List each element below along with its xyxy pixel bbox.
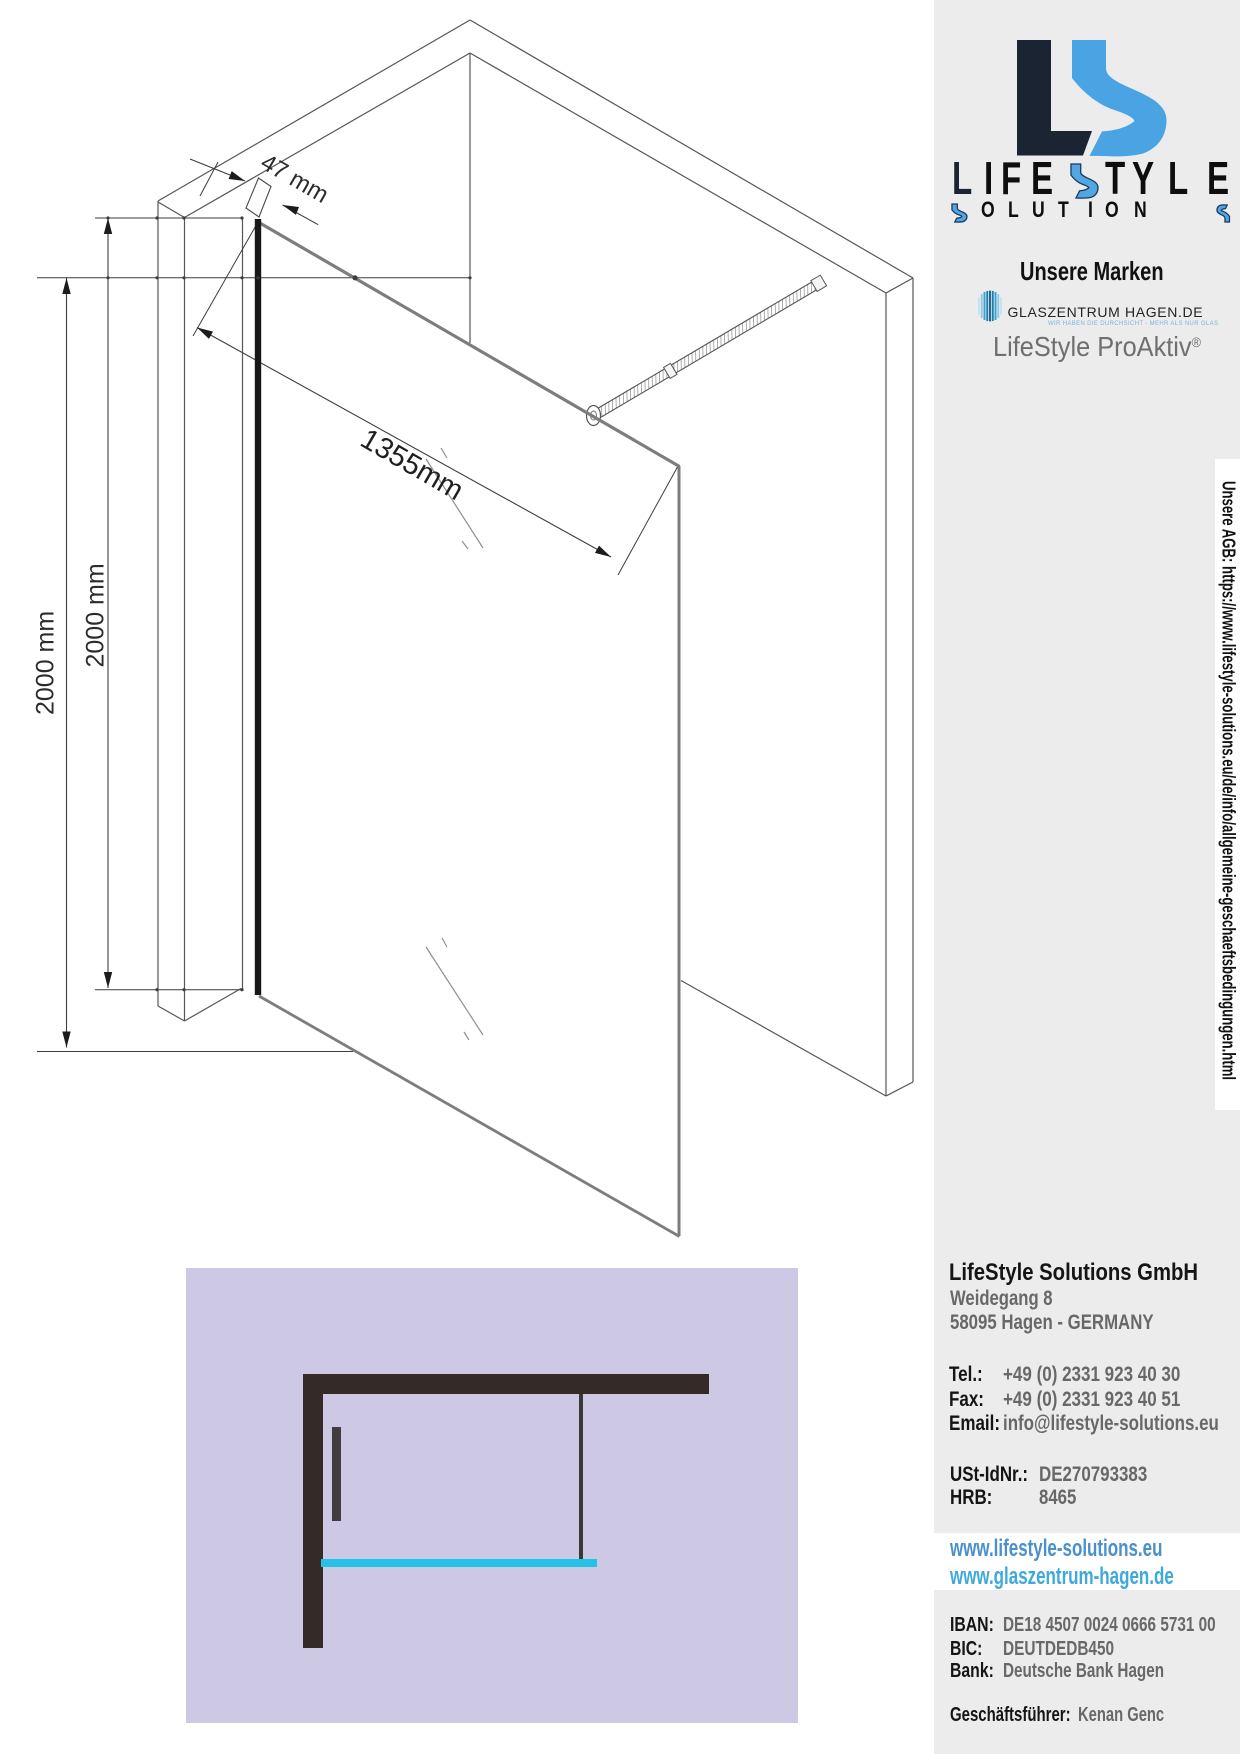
svg-text:2000 mm: 2000 mm bbox=[32, 611, 60, 715]
svg-text:1355mm: 1355mm bbox=[355, 423, 469, 507]
svg-text:2000 mm: 2000 mm bbox=[82, 563, 110, 667]
svg-text:47 mm: 47 mm bbox=[256, 149, 333, 209]
